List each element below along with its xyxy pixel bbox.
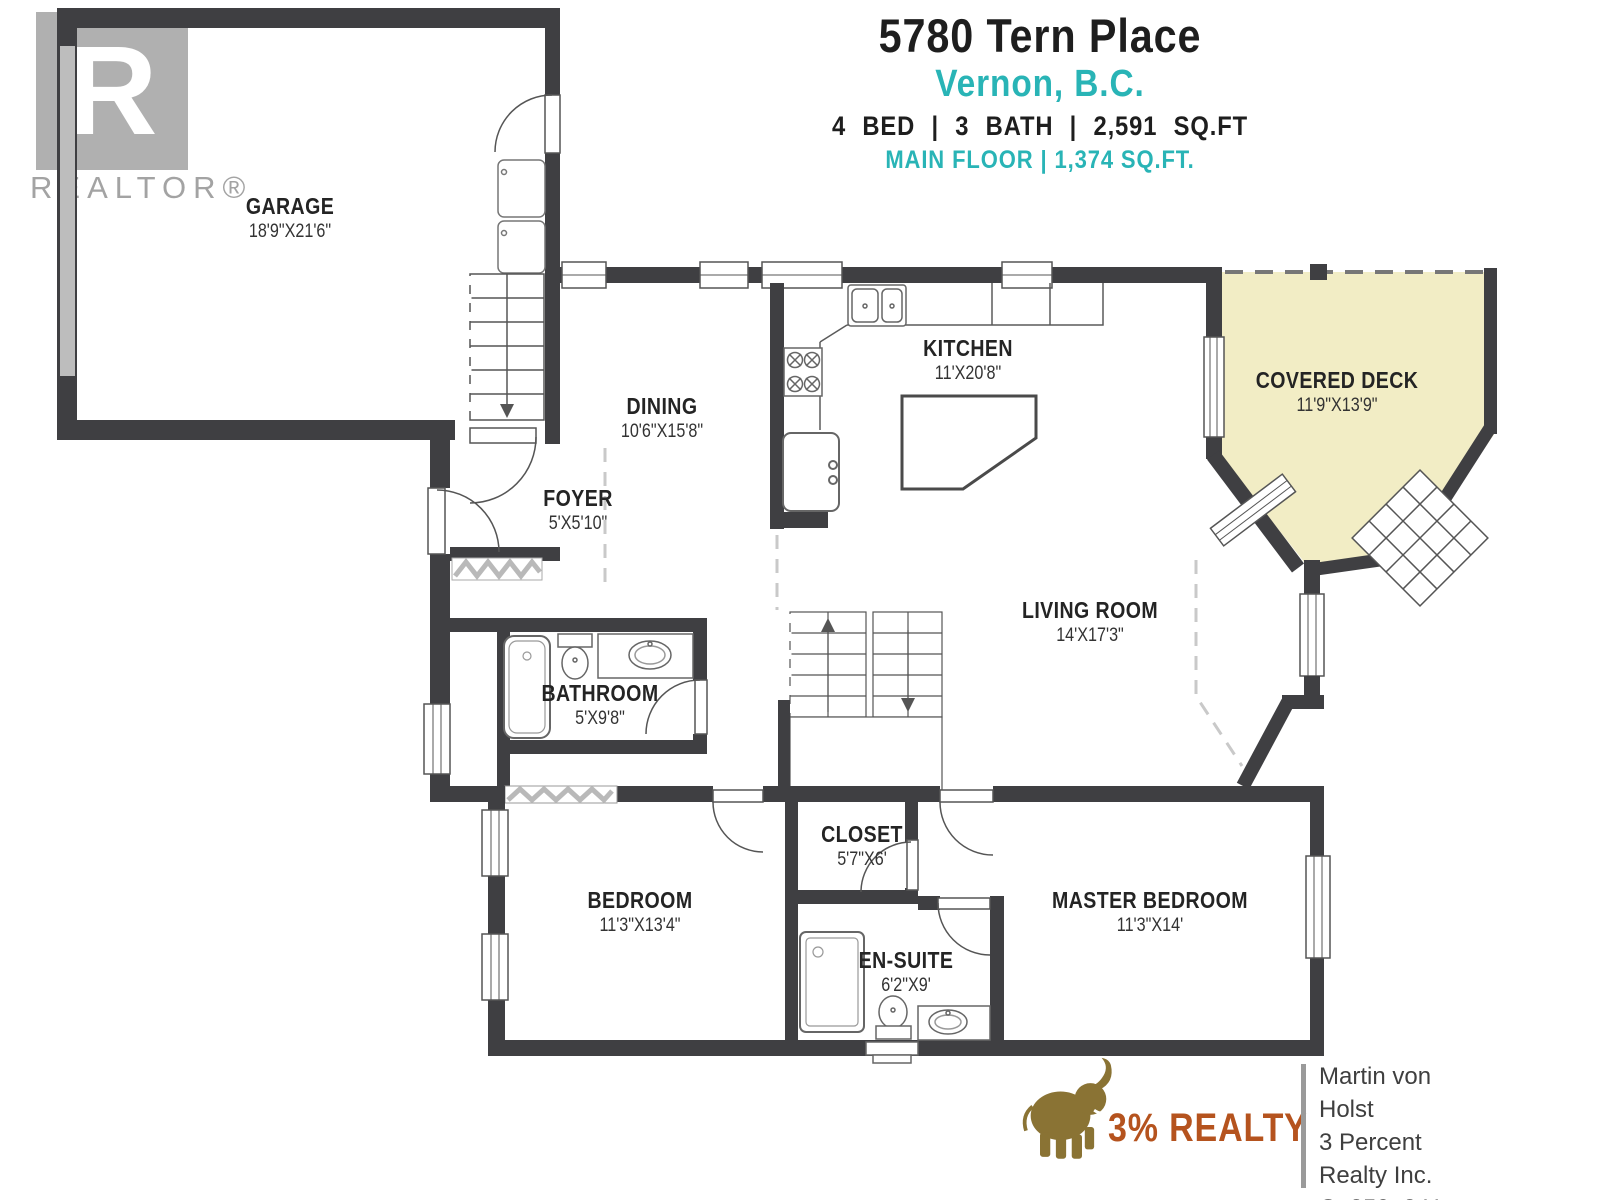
bedroom-closet — [505, 786, 617, 803]
label-bedroom: BEDROOM11'3"X13'4" — [587, 887, 692, 937]
hall-window — [424, 704, 450, 774]
listing-header: 5780 Tern Place Vernon, B.C. 4 BED | 3 B… — [740, 8, 1340, 175]
garage-appliances — [498, 160, 545, 273]
floorplan-page: R REALTOR® — [0, 0, 1600, 1200]
label-closet: CLOSET5'7"X6' — [821, 821, 903, 871]
realty-logo-text: 3% REALTY — [1108, 1106, 1308, 1151]
agent-name: Martin von Holst — [1319, 1060, 1475, 1126]
label-bathroom: BATHROOM5'X9'8" — [541, 680, 658, 730]
agent-company: 3 Percent Realty Inc. — [1319, 1126, 1475, 1192]
agent-phone: C: 250. 241. 5000 — [1319, 1192, 1475, 1200]
main-stairs — [790, 612, 942, 790]
bedroom-door — [713, 790, 763, 852]
north-wall — [560, 262, 1222, 288]
front-door — [428, 488, 499, 554]
label-garage: GARAGE18'9"X21'6" — [246, 193, 334, 243]
label-covered-deck: COVERED DECK11'9"X13'9" — [1256, 367, 1419, 417]
foyer-closet — [452, 558, 542, 580]
label-kitchen: KITCHEN11'X20'8" — [923, 335, 1013, 385]
footer-divider — [1301, 1064, 1306, 1188]
label-ensuite: EN-SUITE6'2"X9' — [859, 947, 954, 997]
floor-plan-drawing — [0, 0, 1600, 1200]
label-dining: DINING10'6"X15'8" — [621, 393, 703, 443]
label-master-bedroom: MASTER BEDROOM11'3"X14' — [1052, 887, 1248, 937]
master-bedroom-door — [940, 790, 993, 855]
page-title: 5780 Tern Place — [776, 8, 1304, 63]
agent-contact-block: Martin von Holst 3 Percent Realty Inc. C… — [1319, 1060, 1475, 1200]
landing-door — [470, 428, 536, 503]
label-living-room: LIVING ROOM14'X17'3" — [1022, 597, 1158, 647]
living-room-east-wall — [1243, 560, 1324, 786]
garage-stairs — [470, 274, 544, 420]
bathroom-vanity — [598, 634, 693, 678]
deck-sliding-door — [1204, 337, 1224, 437]
city-subtitle: Vernon, B.C. — [776, 63, 1304, 106]
bathroom-toilet — [558, 634, 592, 679]
master-window — [1306, 856, 1330, 958]
stove — [784, 348, 822, 396]
shower — [800, 932, 864, 1032]
ensuite-sink — [918, 1006, 990, 1040]
stair-stub-wall — [778, 700, 790, 790]
kitchen-sink — [848, 285, 906, 326]
floor-info: MAIN FLOOR | 1,374 SQ.FT. — [776, 146, 1304, 175]
label-foyer: FOYER5'X5'10" — [543, 485, 612, 535]
bed-bath-sqft: 4 BED | 3 BATH | 2,591 SQ.FT — [776, 111, 1304, 142]
garage-door-to-landing — [495, 95, 560, 153]
kitchen-island — [902, 396, 1036, 489]
ensuite-toilet — [866, 996, 918, 1063]
fridge — [783, 433, 839, 511]
